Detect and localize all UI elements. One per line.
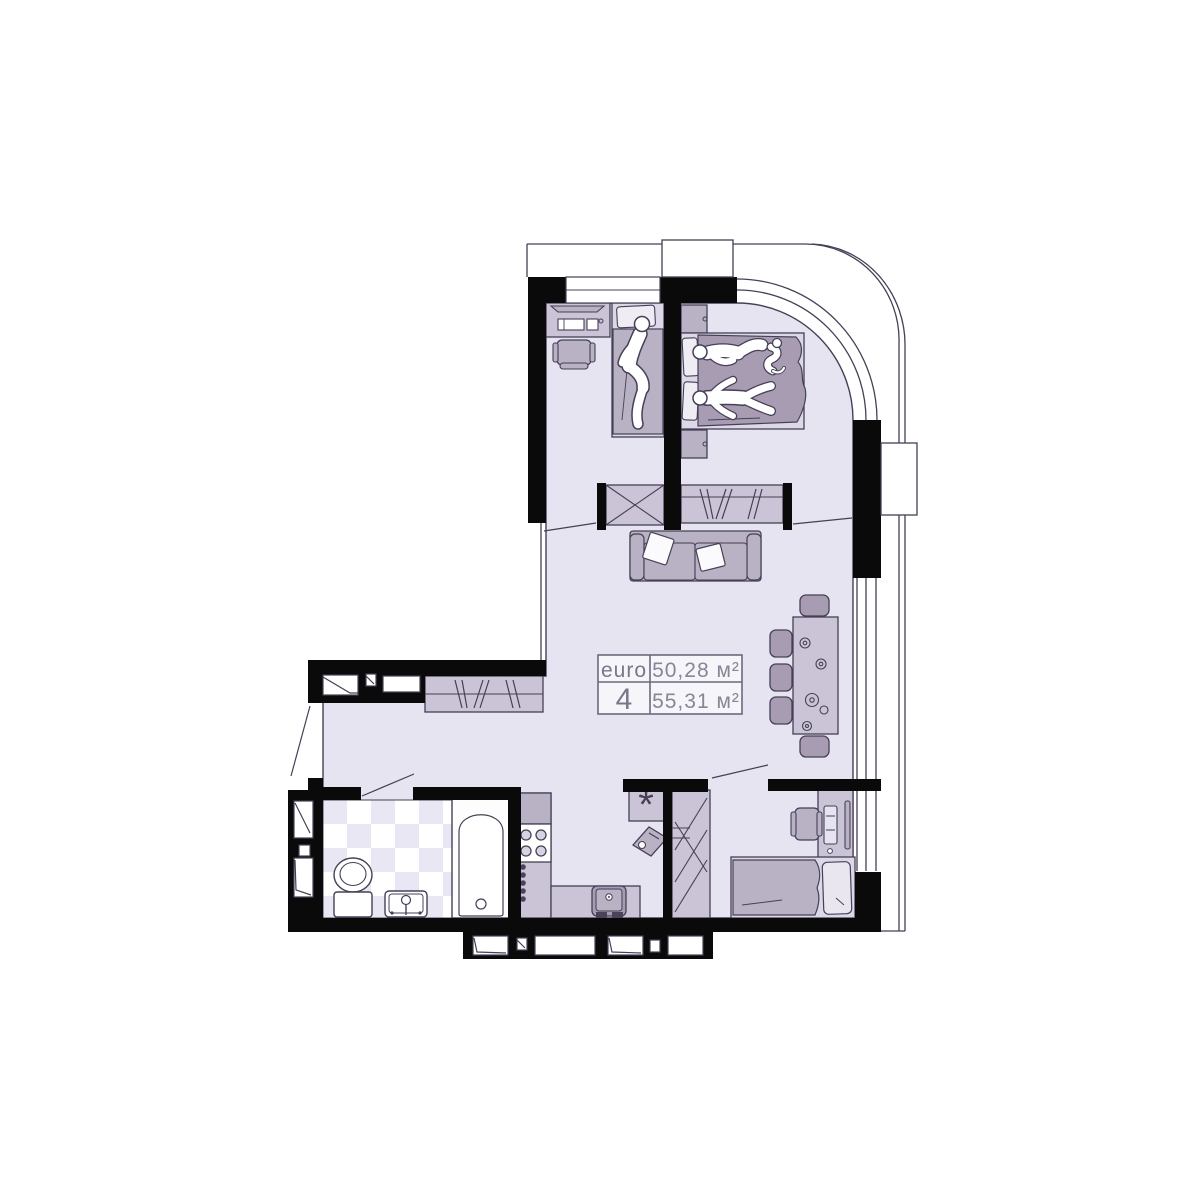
nook-bed-pillow bbox=[822, 862, 852, 915]
label-total-area: 55,31 м² bbox=[652, 690, 740, 713]
kitchen-sink bbox=[592, 886, 626, 920]
bedroom1-desk bbox=[546, 303, 610, 337]
label-living-area: 50,28 м² bbox=[652, 659, 740, 682]
tall-wardrobe bbox=[672, 790, 710, 918]
top-shaft-box bbox=[662, 240, 733, 277]
nook-desk bbox=[818, 790, 853, 858]
nook-bed bbox=[731, 857, 855, 918]
wall-stub-wardrobe-right bbox=[783, 483, 792, 530]
floor-plan-svg: * bbox=[0, 0, 1200, 1200]
hall-wardrobe bbox=[425, 676, 543, 712]
wall-entry-stub bbox=[308, 778, 323, 790]
wall-bottom-right-corner bbox=[855, 872, 881, 932]
keyboard bbox=[558, 319, 584, 330]
bathtub bbox=[452, 799, 510, 918]
dining-chair-left-3 bbox=[770, 697, 792, 724]
pc-tower bbox=[824, 806, 837, 844]
floor-plan-canvas: * bbox=[0, 0, 1200, 1200]
dining-table bbox=[793, 617, 838, 734]
bedroom1-bed bbox=[612, 303, 664, 437]
wall-kitchen-bath-divider bbox=[508, 787, 521, 918]
double-bed bbox=[681, 333, 806, 429]
wall-bedroom-divider bbox=[664, 297, 681, 530]
dining-chair-bottom bbox=[800, 736, 829, 757]
bottom-vent-shafts bbox=[473, 936, 703, 955]
nook-chair bbox=[791, 808, 822, 840]
wall-stub-cabinet-left bbox=[597, 483, 606, 530]
wall-utility-divider bbox=[663, 790, 672, 918]
label-type: euro bbox=[601, 659, 647, 682]
dining-chair-top bbox=[800, 595, 829, 616]
entrance-door-swing bbox=[291, 706, 310, 776]
monitor-icon bbox=[551, 306, 604, 312]
living-wardrobe bbox=[681, 485, 783, 523]
label-rooms-count: 4 bbox=[616, 683, 633, 716]
utility-closet: * bbox=[629, 783, 667, 856]
right-sill-box bbox=[881, 443, 917, 515]
dining-chair-left-2 bbox=[770, 664, 792, 691]
bedroom1-chair bbox=[553, 340, 595, 369]
wall-bottom bbox=[288, 918, 881, 932]
bathroom-sink bbox=[385, 891, 427, 917]
wall-nook-top bbox=[768, 779, 881, 791]
wall-bathroom-top-2 bbox=[413, 787, 520, 800]
stove bbox=[516, 824, 551, 862]
dining-chair-left-1 bbox=[770, 630, 792, 657]
wall-left-upper bbox=[528, 277, 546, 523]
monitor-icon bbox=[845, 801, 850, 849]
wall-bathroom-top-1 bbox=[323, 787, 361, 800]
x-cabinet bbox=[606, 485, 664, 525]
toilet bbox=[334, 858, 372, 917]
area-label: euro 4 50,28 м² 55,31 м² bbox=[598, 655, 742, 716]
sofa bbox=[630, 531, 761, 581]
kitchen-upper-cabinet bbox=[520, 793, 551, 824]
wall-right-pillar bbox=[853, 420, 881, 578]
